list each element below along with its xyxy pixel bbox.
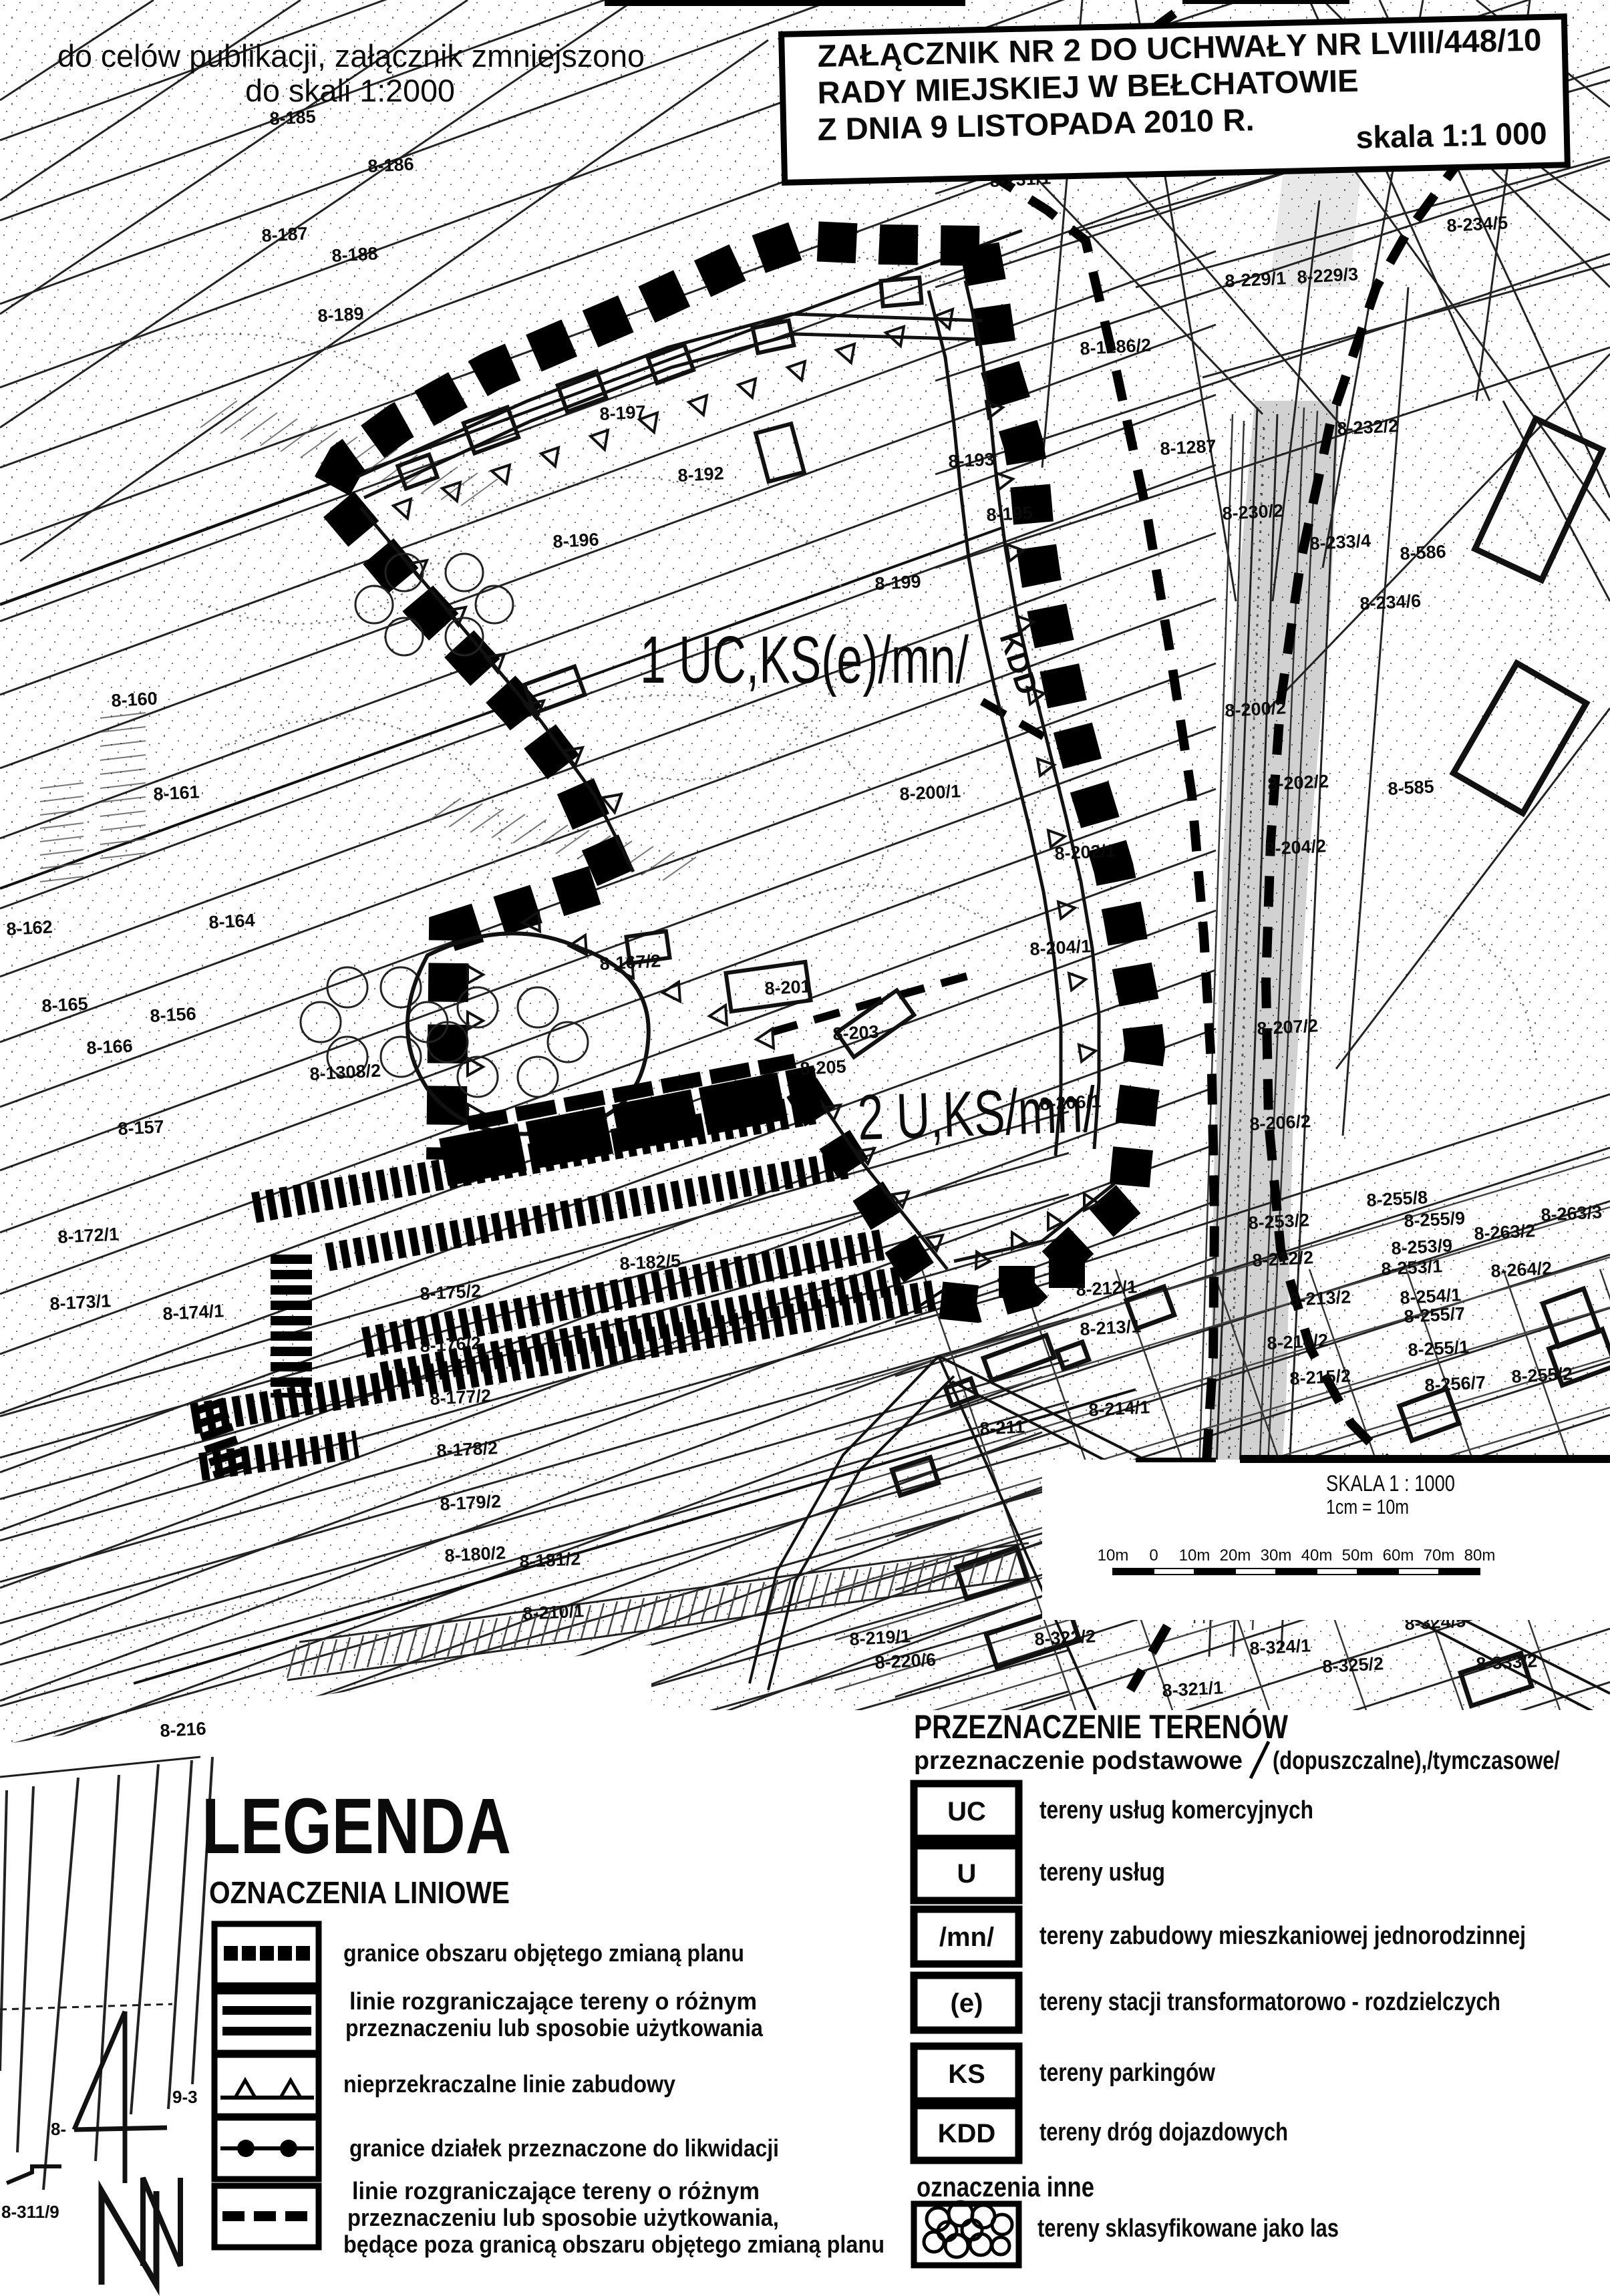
svg-text:przeznaczeniu lub sposobie uży: przeznaczeniu lub sposobie użytkowania	[345, 2014, 764, 2041]
svg-text:10m: 10m	[1098, 1546, 1129, 1565]
svg-text:U: U	[957, 1859, 977, 1889]
svg-text:tereny sklasyfikowane jako las: tereny sklasyfikowane jako las	[1037, 2215, 1339, 2243]
svg-text:30m: 30m	[1261, 1546, 1292, 1565]
svg-text:będące poza granicą obszaru ob: będące poza granicą obszaru objętego zmi…	[343, 2231, 884, 2258]
svg-text:LEGENDA: LEGENDA	[202, 1782, 511, 1870]
svg-text:do skali 1:2000: do skali 1:2000	[245, 73, 455, 108]
svg-text:tereny parkingów: tereny parkingów	[1039, 2059, 1215, 2087]
svg-text:20m: 20m	[1220, 1546, 1251, 1565]
svg-text:0: 0	[1149, 1546, 1158, 1565]
svg-text:9-3: 9-3	[172, 2087, 198, 2107]
svg-text:/mn/: /mn/	[939, 1923, 994, 1952]
svg-text:linie rozgraniczające tereny o: linie rozgraniczające tereny o różnym	[352, 2177, 760, 2204]
svg-text:8-: 8-	[51, 2119, 66, 2139]
svg-text:granice działek przeznaczone d: granice działek przeznaczone do likwidac…	[349, 2134, 779, 2162]
svg-text:oznaczenia inne: oznaczenia inne	[917, 2171, 1094, 2202]
svg-text:tereny usług komercyjnych: tereny usług komercyjnych	[1039, 1796, 1313, 1824]
svg-text:10m: 10m	[1179, 1546, 1211, 1565]
svg-text:PRZEZNACZENIE TERENÓW: PRZEZNACZENIE TERENÓW	[914, 1708, 1289, 1746]
svg-text:(dopuszczalne),/tymczasowe/: (dopuszczalne),/tymczasowe/	[1273, 1747, 1560, 1775]
svg-text:1cm = 10m: 1cm = 10m	[1326, 1495, 1409, 1518]
svg-text:tereny stacji transformatorowo: tereny stacji transformatorowo - rozdzie…	[1039, 1988, 1500, 2016]
svg-text:70m: 70m	[1424, 1546, 1455, 1565]
svg-text:8-311/9: 8-311/9	[1, 2202, 59, 2222]
svg-text:8-216: 8-216	[160, 1718, 207, 1741]
svg-text:tereny usług: tereny usług	[1039, 1858, 1165, 1887]
svg-text:granice obszaru objętego zmian: granice obszaru objętego zmianą planu	[343, 1939, 744, 1967]
svg-text:przeznaczenie podstawowe: przeznaczenie podstawowe	[914, 1747, 1243, 1775]
svg-text:SKALA 1 : 1000: SKALA 1 : 1000	[1326, 1471, 1455, 1496]
svg-text:KS: KS	[948, 2060, 985, 2089]
svg-text:linie rozgraniczające tereny o: linie rozgraniczające tereny o różnym	[349, 1987, 757, 2015]
svg-text:50m: 50m	[1342, 1546, 1374, 1565]
svg-text:tereny zabudowy mieszkaniowej: tereny zabudowy mieszkaniowej jednorodzi…	[1039, 1922, 1526, 1950]
svg-text:tereny dróg dojazdowych: tereny dróg dojazdowych	[1039, 2118, 1288, 2146]
svg-text:40m: 40m	[1301, 1546, 1333, 1565]
svg-text:60m: 60m	[1383, 1546, 1414, 1565]
svg-text:skala 1:1 000: skala 1:1 000	[1355, 116, 1547, 155]
svg-text:UC: UC	[947, 1797, 986, 1826]
svg-text:(e): (e)	[951, 1989, 983, 2018]
svg-text:80m: 80m	[1464, 1546, 1496, 1565]
svg-text:KDD: KDD	[938, 2119, 996, 2148]
svg-text:OZNACZENIA LINIOWE: OZNACZENIA LINIOWE	[209, 1875, 510, 1910]
svg-text:przeznaczeniu lub sposobie uży: przeznaczeniu lub sposobie użytkowania,	[347, 2204, 779, 2231]
svg-text:nieprzekraczalne linie zabudow: nieprzekraczalne linie zabudowy	[343, 2070, 675, 2098]
svg-text:do celów publikacji, załącznik: do celów publikacji, załącznik zmniejszo…	[57, 38, 645, 73]
